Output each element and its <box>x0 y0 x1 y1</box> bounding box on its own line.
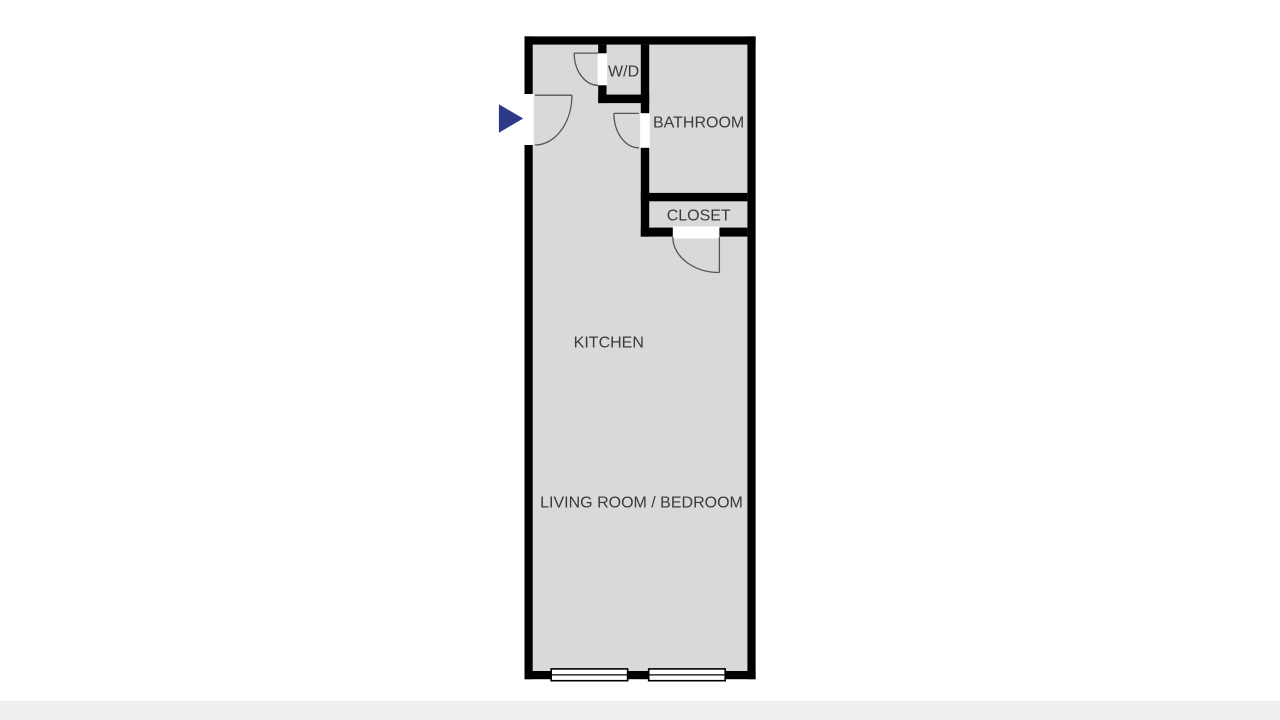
svg-text:KITCHEN: KITCHEN <box>574 335 644 352</box>
svg-text:LIVING ROOM / BEDROOM: LIVING ROOM / BEDROOM <box>540 495 743 512</box>
svg-text:BATHROOM: BATHROOM <box>653 114 744 131</box>
svg-text:W/D: W/D <box>608 64 639 81</box>
svg-text:CLOSET: CLOSET <box>667 208 731 225</box>
